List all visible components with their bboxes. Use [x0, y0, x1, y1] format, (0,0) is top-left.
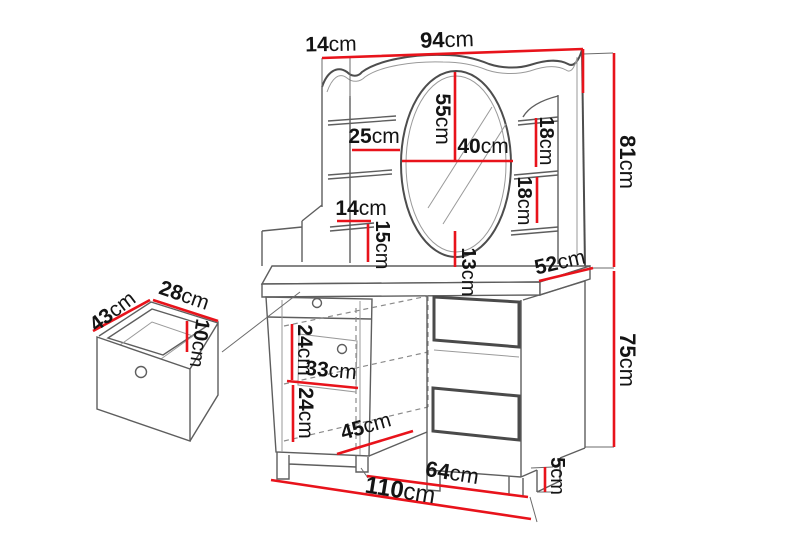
pedestal-mid-rail [434, 350, 519, 357]
dim-label-14-top: 14cm [305, 32, 357, 56]
drawer-leader-line [222, 292, 300, 352]
right-shelf-3 [511, 227, 558, 235]
dim-label-81: 81cm [615, 135, 640, 189]
dim-label-28: 28cm [156, 276, 212, 314]
dim-label-24-lower: 24cm [294, 387, 317, 438]
left-shelf-2 [328, 170, 392, 179]
dim-label-14-mid: 14cm [335, 197, 386, 220]
dim-label-15: 15cm [371, 221, 393, 270]
dim-label-33: 33cm [304, 356, 357, 383]
pedestal-open-drawer [434, 297, 519, 347]
dim-label-18-lower: 18cm [513, 177, 535, 226]
dim-label-94: 94cm [420, 26, 475, 53]
dim-label-25: 25cm [348, 125, 399, 148]
dim-label-13: 13cm [457, 248, 479, 297]
dim-label-10: 10cm [184, 317, 213, 369]
dim-label-55: 55cm [431, 93, 454, 144]
pedestal-lower-front [433, 388, 519, 440]
dim-label-18-upper: 18cm [535, 117, 557, 166]
knob-top-drawer [313, 299, 322, 308]
left-side-panel [262, 87, 322, 266]
dim-label-75: 75cm [615, 333, 640, 387]
diagram-svg: 14cm 94cm 81cm 25cm 55cm 40cm 18cm 18cm … [0, 0, 800, 533]
technical-drawing-canvas: 14cm 94cm 81cm 25cm 55cm 40cm 18cm 18cm … [0, 0, 800, 533]
dim-label-5: 5cm [546, 457, 568, 495]
tabletop-front-band [262, 282, 540, 297]
drawer-front-panel [97, 337, 190, 441]
dim-label-40: 40cm [457, 135, 508, 158]
knob-inner-drawer [338, 345, 347, 354]
right-bracket-curve [523, 96, 558, 117]
